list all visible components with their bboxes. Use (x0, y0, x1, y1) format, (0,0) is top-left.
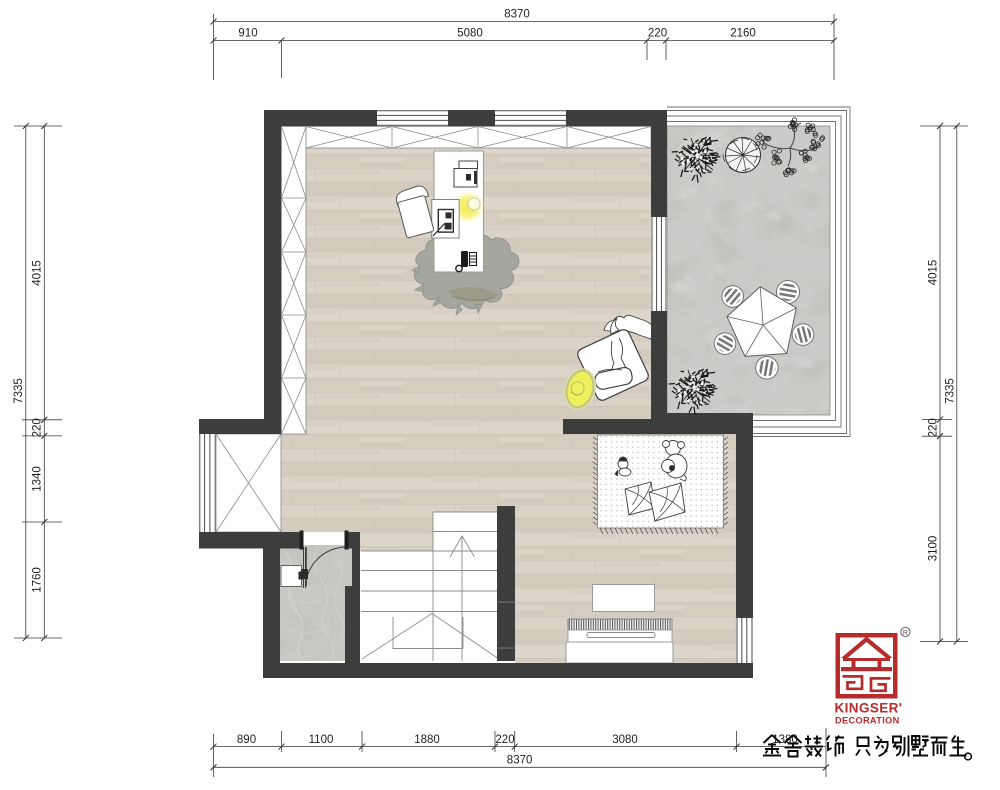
svg-text:7335: 7335 (13, 378, 25, 404)
svg-text:4015: 4015 (928, 260, 940, 286)
svg-text:7335: 7335 (945, 378, 957, 404)
svg-text:1100: 1100 (309, 734, 334, 746)
svg-text:220: 220 (495, 734, 514, 746)
svg-text:910: 910 (238, 28, 257, 40)
svg-text:220: 220 (648, 28, 667, 40)
svg-text:2160: 2160 (730, 28, 756, 40)
svg-text:4015: 4015 (32, 260, 44, 286)
svg-text:8370: 8370 (504, 9, 530, 21)
svg-text:3080: 3080 (612, 734, 638, 746)
svg-text:3100: 3100 (928, 536, 940, 562)
svg-text:DECORATION: DECORATION (835, 716, 900, 726)
svg-text:220: 220 (928, 418, 940, 437)
svg-text:220: 220 (32, 418, 44, 437)
svg-text:5080: 5080 (457, 28, 483, 40)
svg-text:890: 890 (237, 734, 256, 746)
svg-text:1340: 1340 (32, 466, 44, 492)
svg-text:R: R (903, 630, 908, 637)
svg-text:1760: 1760 (32, 567, 44, 593)
svg-text:KINGSER': KINGSER' (835, 701, 903, 716)
svg-text:1880: 1880 (414, 734, 440, 746)
svg-text:8370: 8370 (507, 755, 533, 767)
